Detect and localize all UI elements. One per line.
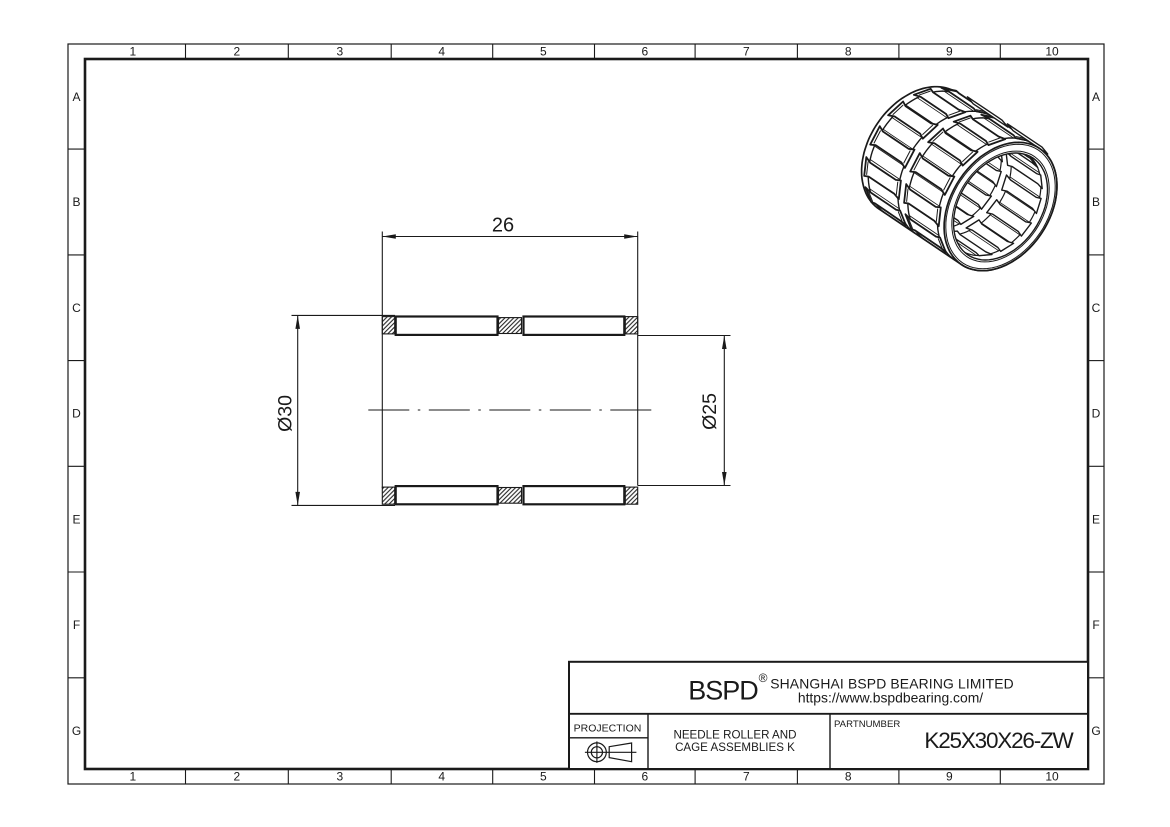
svg-text:https://www.bspdbearing.com/: https://www.bspdbearing.com/: [798, 689, 983, 705]
svg-text:6: 6: [641, 45, 648, 59]
svg-text:PROJECTION: PROJECTION: [574, 723, 642, 735]
svg-text:NEEDLE ROLLER AND: NEEDLE ROLLER AND: [673, 729, 796, 742]
svg-text:6: 6: [641, 770, 648, 784]
svg-text:CAGE ASSEMBLIES K: CAGE ASSEMBLIES K: [675, 741, 795, 754]
svg-text:9: 9: [946, 770, 953, 784]
svg-text:10: 10: [1045, 770, 1059, 784]
svg-text:8: 8: [845, 770, 852, 784]
svg-text:1: 1: [129, 770, 136, 784]
svg-text:G: G: [1091, 724, 1100, 738]
svg-text:3: 3: [336, 770, 343, 784]
svg-text:9: 9: [946, 45, 953, 59]
svg-text:BSPD: BSPD: [688, 676, 758, 706]
svg-text:K25X30X26-ZW: K25X30X26-ZW: [924, 728, 1074, 753]
svg-text:D: D: [72, 407, 81, 421]
svg-text:5: 5: [540, 45, 547, 59]
svg-text:2: 2: [234, 770, 241, 784]
svg-text:Ø25: Ø25: [699, 393, 721, 430]
svg-text:A: A: [72, 90, 80, 104]
svg-text:®: ®: [759, 671, 768, 685]
svg-text:4: 4: [438, 770, 445, 784]
svg-text:4: 4: [438, 45, 445, 59]
svg-text:3: 3: [336, 45, 343, 59]
svg-text:C: C: [72, 301, 81, 315]
svg-text:1: 1: [129, 45, 136, 59]
svg-text:D: D: [1092, 407, 1101, 421]
svg-text:G: G: [72, 724, 81, 738]
svg-text:Ø30: Ø30: [275, 395, 297, 432]
svg-text:E: E: [1092, 512, 1100, 526]
svg-text:26: 26: [492, 215, 514, 237]
svg-text:E: E: [72, 512, 80, 526]
svg-text:7: 7: [743, 770, 750, 784]
svg-text:F: F: [1092, 618, 1099, 632]
svg-text:A: A: [1092, 90, 1100, 104]
svg-text:7: 7: [743, 45, 750, 59]
svg-text:C: C: [1092, 301, 1101, 315]
svg-text:10: 10: [1045, 45, 1059, 59]
svg-text:B: B: [1092, 195, 1100, 209]
svg-text:PARTNUMBER: PARTNUMBER: [834, 719, 900, 730]
svg-text:2: 2: [234, 45, 241, 59]
svg-text:B: B: [72, 195, 80, 209]
svg-text:8: 8: [845, 45, 852, 59]
svg-text:F: F: [73, 618, 80, 632]
svg-text:5: 5: [540, 770, 547, 784]
